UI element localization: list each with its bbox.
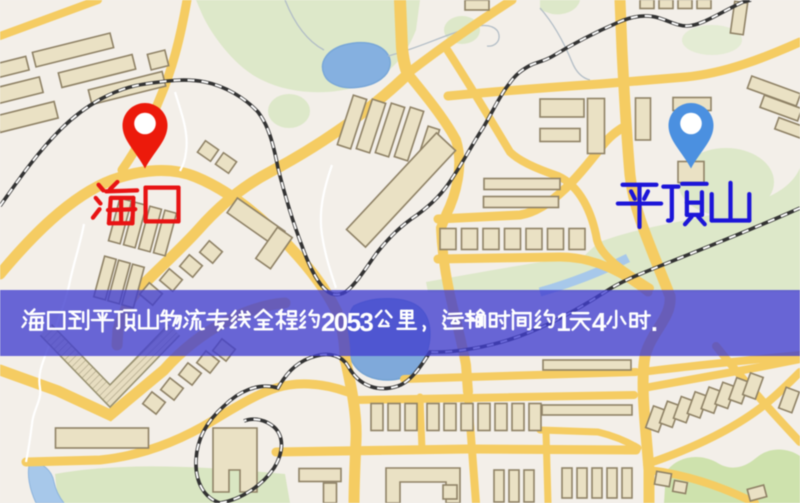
svg-text:.: . xyxy=(651,307,658,337)
svg-text:1: 1 xyxy=(556,307,570,337)
svg-text:4: 4 xyxy=(592,307,607,337)
svg-text:3: 3 xyxy=(359,307,373,337)
